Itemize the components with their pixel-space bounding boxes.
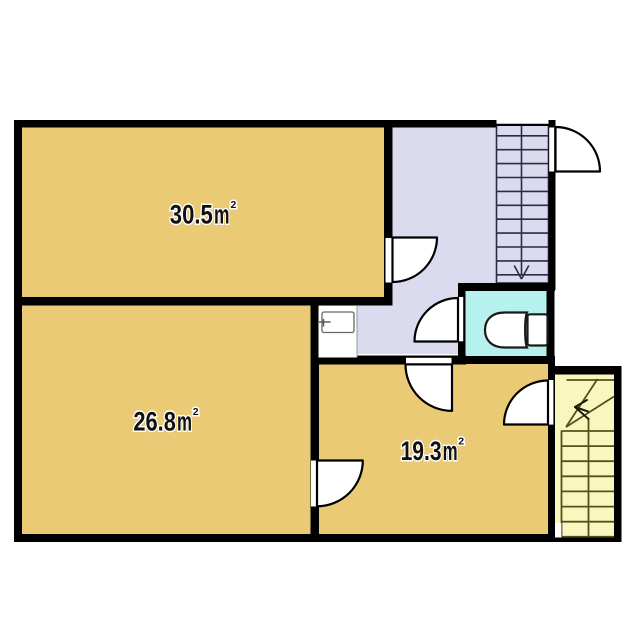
svg-text:2: 2 <box>458 436 464 448</box>
svg-text:2: 2 <box>193 406 199 418</box>
svg-text:m: m <box>443 436 458 466</box>
svg-text:19.3: 19.3 <box>401 436 442 466</box>
svg-text:2: 2 <box>231 199 237 211</box>
svg-text:26.8: 26.8 <box>133 407 176 437</box>
svg-text:m: m <box>177 407 192 437</box>
svg-text:m: m <box>214 200 230 230</box>
svg-text:30.5: 30.5 <box>170 200 213 230</box>
